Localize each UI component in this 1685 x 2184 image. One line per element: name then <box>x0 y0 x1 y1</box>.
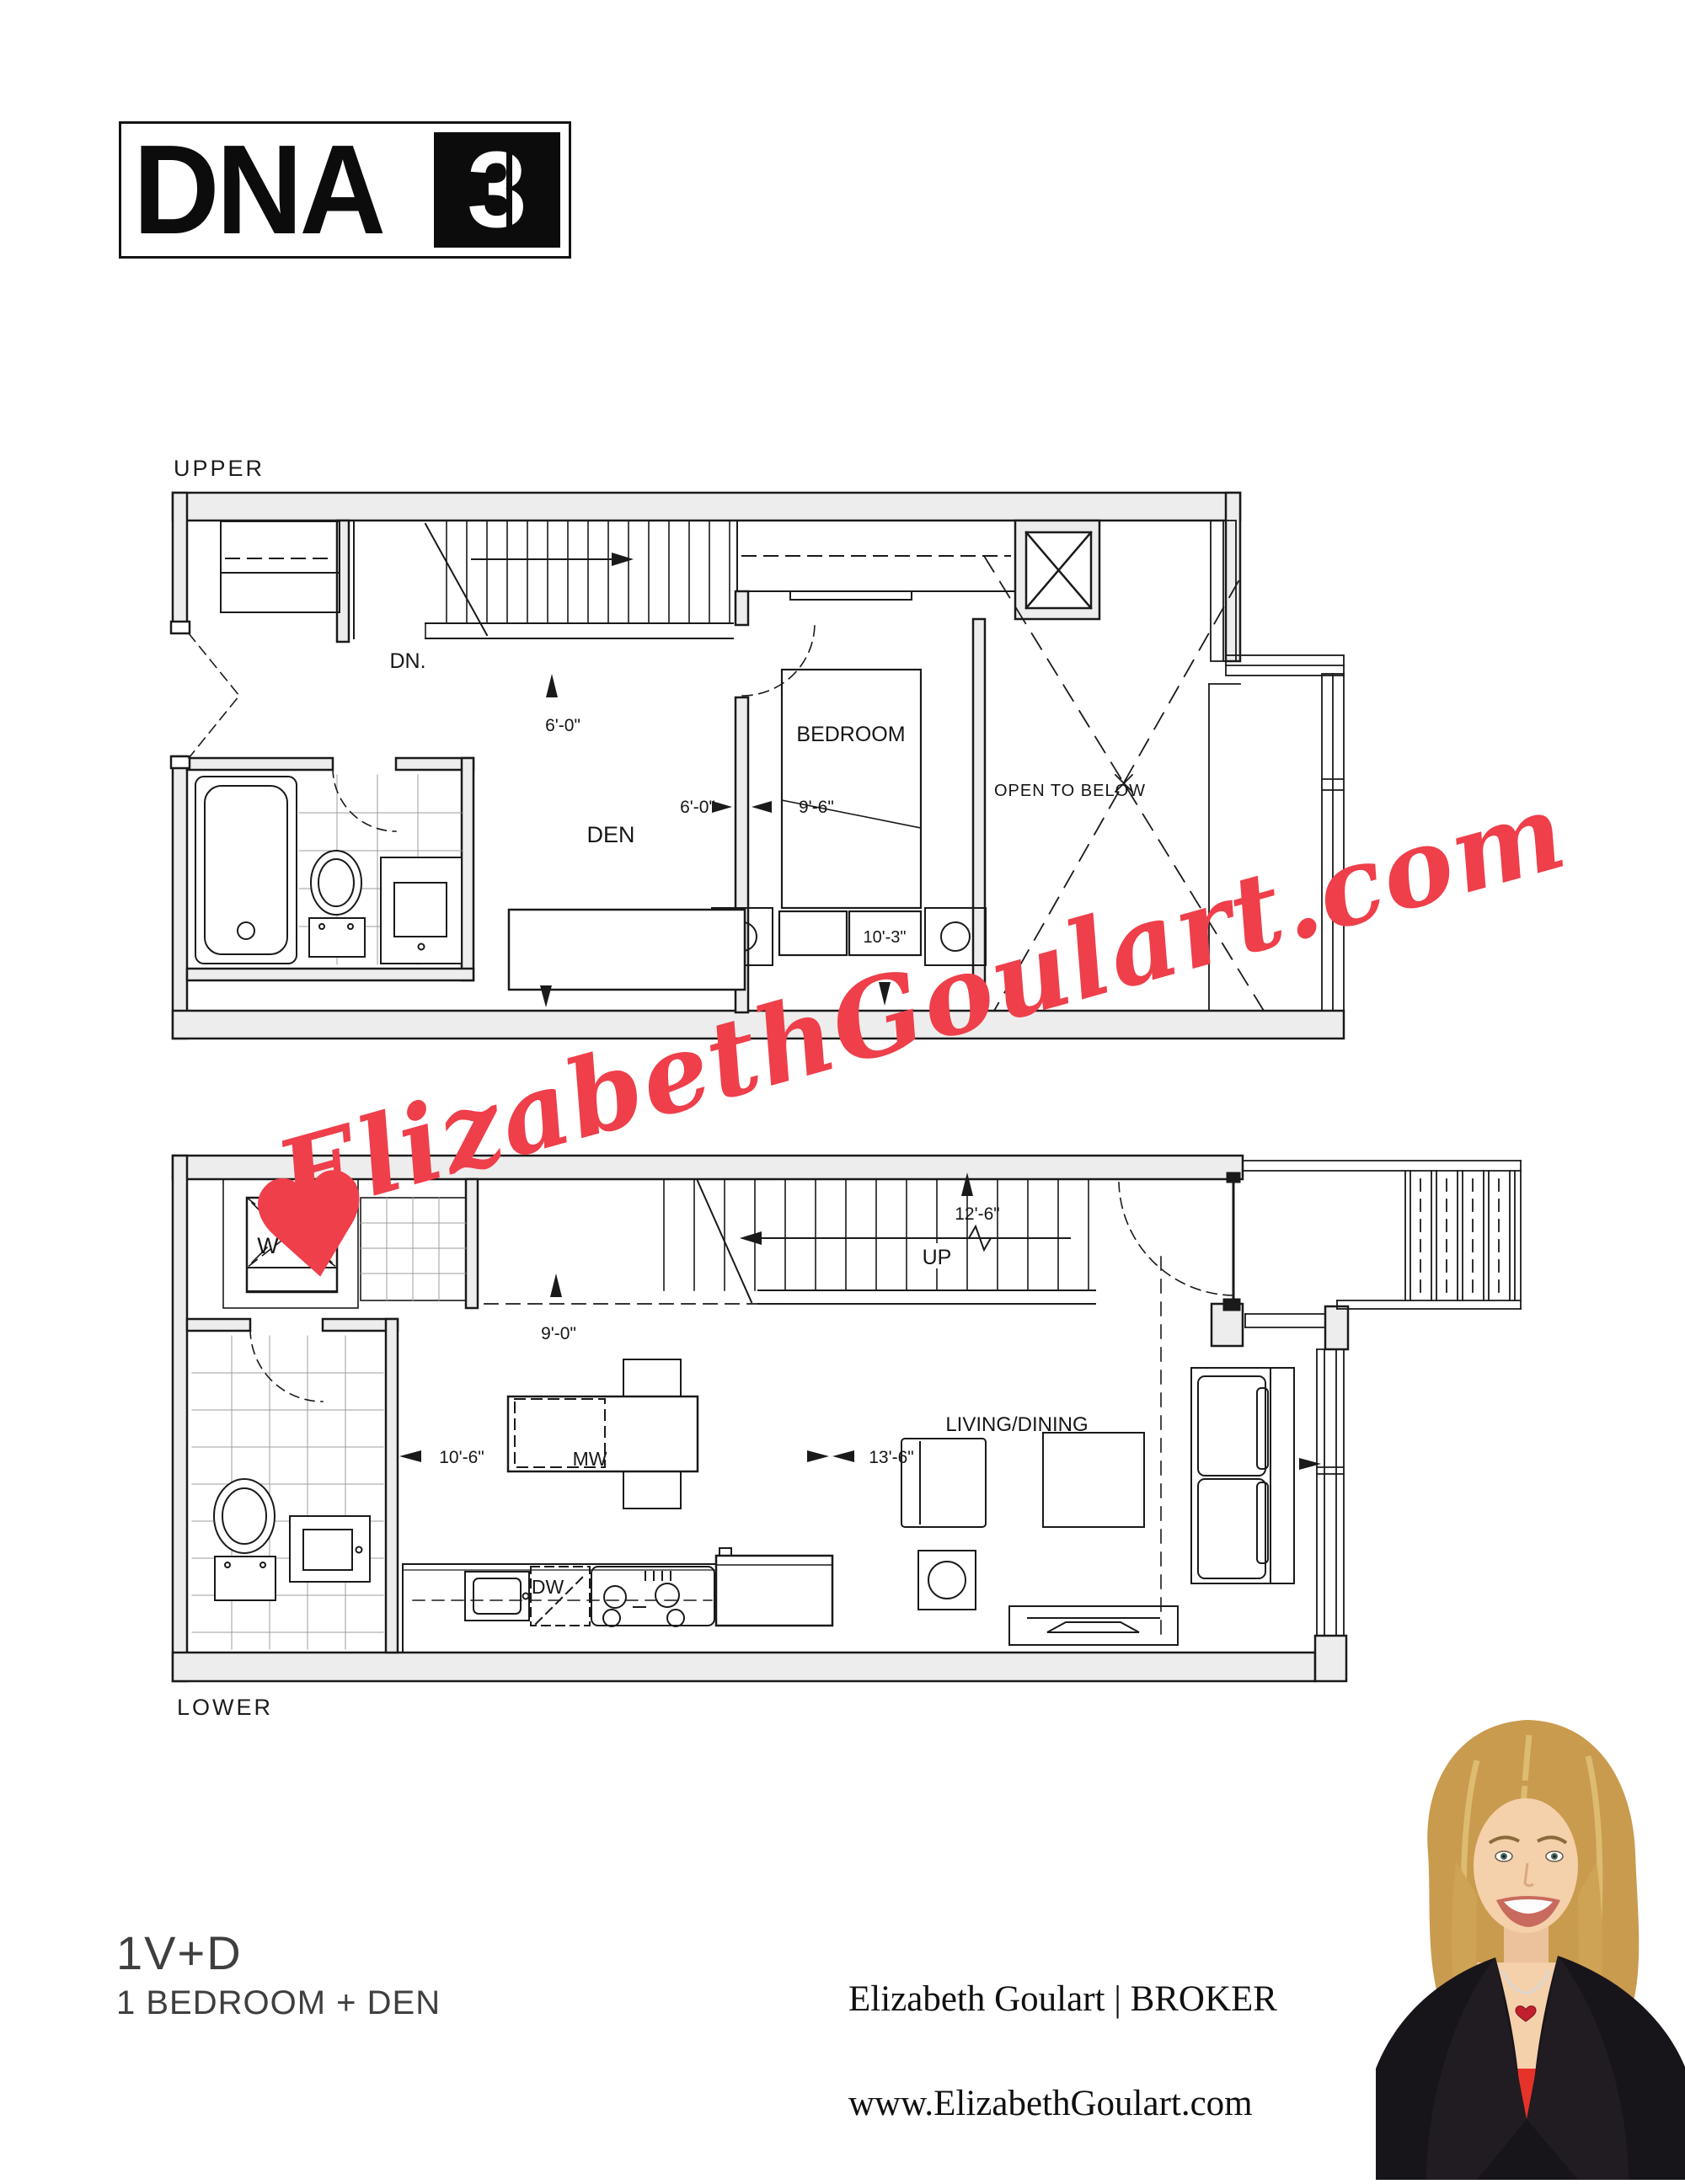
dim-arrow-left <box>399 1450 421 1462</box>
bedroom-width-dim: 9'-6" <box>799 798 834 817</box>
bedroom-door-swing <box>742 623 815 696</box>
broker-portrait <box>1376 1710 1685 2180</box>
den-width-dim: 6'-0" <box>680 798 715 817</box>
entry-door-swing <box>189 633 239 758</box>
side-table-lamp <box>918 1551 976 1610</box>
dishwasher-label: DW <box>532 1576 564 1598</box>
dim-arrow-up <box>546 674 558 697</box>
elevator-shaft <box>1026 532 1091 608</box>
bathtub <box>195 777 297 964</box>
vanity-sink <box>290 1516 370 1582</box>
kitchen-sink <box>465 1572 529 1621</box>
exterior-stair <box>1243 1161 1521 1309</box>
kitchen <box>403 1548 832 1653</box>
stair-direction-arrow <box>612 553 634 566</box>
vanity-sink <box>381 857 462 964</box>
living-length-dim: 12'-6" <box>955 1204 1000 1224</box>
bedroom-closet <box>737 521 1015 600</box>
dim-arrow-left <box>752 801 772 813</box>
living-furniture <box>901 1368 1294 1645</box>
lower-stair-label: UP <box>923 1246 952 1269</box>
dim-arrow-down <box>540 985 552 1007</box>
upper-entry-closet <box>221 521 340 612</box>
coffee-table <box>1043 1433 1144 1527</box>
toilet <box>214 1479 275 1600</box>
chair <box>623 1359 681 1396</box>
open-to-below-label: OPEN TO BELOW <box>994 782 1146 800</box>
living-width-dim: 13'-6" <box>869 1448 914 1467</box>
chair <box>623 1471 681 1509</box>
bedroom-label: BEDROOM <box>796 723 905 746</box>
bedroom-length-dim: 10'-3" <box>864 928 907 947</box>
dim-arrow-up <box>550 1274 562 1297</box>
microwave-label: MW <box>573 1448 607 1470</box>
den-label: DEN <box>586 822 634 847</box>
toilet <box>309 851 365 957</box>
dim-arrow-left <box>832 1450 854 1462</box>
dim-arrow-right <box>712 801 732 813</box>
stove <box>591 1567 714 1626</box>
den-desk <box>509 910 745 990</box>
broker-photo <box>1376 1710 1685 2180</box>
upper-stair-label: DN. <box>389 649 425 673</box>
entry-dim: 9'-0" <box>541 1324 576 1343</box>
lower-staircase <box>664 1179 1095 1304</box>
armchair <box>901 1439 986 1527</box>
dim-arrow-right <box>807 1450 829 1462</box>
refrigerator <box>716 1548 832 1626</box>
stair-direction-arrow <box>740 1231 762 1245</box>
bathroom-door-swing <box>333 768 396 831</box>
terrace-door <box>1119 1172 1240 1311</box>
upper-bathroom <box>195 768 462 964</box>
sofa <box>1191 1368 1294 1583</box>
upper-staircase <box>354 521 733 638</box>
bathroom-door-swing <box>250 1329 323 1402</box>
door-swing <box>1119 1183 1233 1295</box>
den-depth-dim: 6'-0" <box>545 716 580 735</box>
tv-console <box>1009 1606 1178 1645</box>
watermark-heart-icon: ♥ <box>239 1148 387 1307</box>
island-dining-table <box>508 1359 698 1509</box>
kitchen-dim: 10'-6" <box>439 1448 484 1467</box>
lower-bathroom <box>192 1329 383 1649</box>
